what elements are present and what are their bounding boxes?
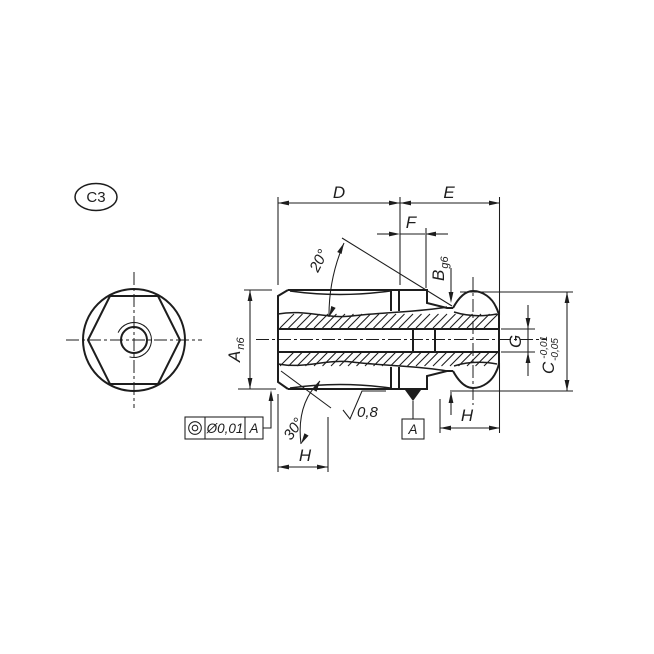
angle-dimension-30: 30° [280,371,331,445]
dim-h-bottom-label: H [299,446,312,465]
dim-c-label: C-0,01-0,05 [539,336,561,374]
dimension-G: G [501,305,535,376]
drawing-sheet: C3 [0,0,654,654]
dimension-B: Bg6 [429,256,453,415]
datum-feature-symbol: A [402,390,424,439]
angle-20-label: 20° [306,247,332,276]
dim-g-label: G [506,335,525,348]
dimension-H-right: H [440,399,500,433]
datum-triangle-icon [405,390,421,401]
roughness-value: 0,8 [357,404,379,421]
dim-a-label: An6 [225,337,247,363]
dim-e-label: E [443,183,455,202]
hex-flat-arc-bottom [290,385,390,389]
fcf-tolerance-value: Ø0,01 [206,421,244,436]
fcf-datum-ref: A [248,421,258,436]
dim-d-label: D [333,183,345,202]
hex-flat-arc-top [290,291,390,295]
dim-h-right-label: H [461,406,474,425]
technical-drawing: C3 [0,0,654,654]
front-view [66,272,202,408]
balloon-label: C3 [86,189,105,206]
section-view [256,277,547,405]
dim-b-label: Bg6 [429,256,451,281]
datum-label: A [407,422,417,437]
surface-finish-symbol: 0,8 [343,391,386,421]
part-reference-balloon: C3 [75,184,117,211]
feature-control-frame: Ø0,01 A [185,389,276,439]
hatching-top [280,314,498,328]
dim-f-label: F [406,213,418,232]
concentricity-icon [189,422,202,435]
